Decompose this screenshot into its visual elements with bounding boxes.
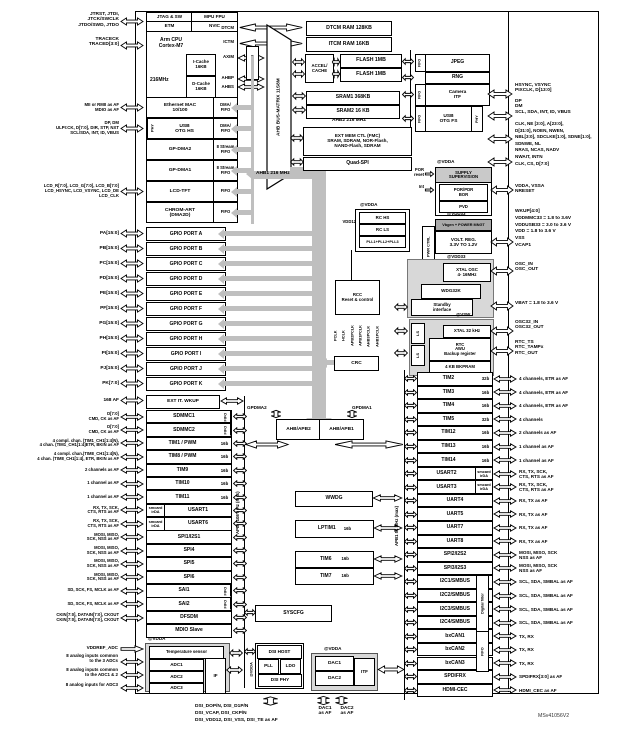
block-bits-tag: 16b bbox=[218, 478, 231, 490]
gpio-row: PB[15:0] GPIO PORT B bbox=[0, 241, 340, 256]
dac-itf-block: ITF bbox=[354, 658, 375, 686]
pin-arrow bbox=[493, 673, 517, 681]
dma-row: GP-DMA1 8 Stream FIFO bbox=[0, 160, 340, 181]
cpu-port-dtcm: DTCM bbox=[212, 26, 234, 31]
pin-arrow bbox=[120, 426, 144, 434]
adc-in3-pins: 8 analog inputs for ADC3 bbox=[0, 683, 118, 688]
block-bits-tag: 32b bbox=[479, 373, 492, 385]
usb-fs-arrow bbox=[402, 115, 414, 122]
apb2-block-name: TIM11 bbox=[147, 491, 218, 503]
camera-pins: HSYNC, VSYNC PIXCLK, D[13:0] bbox=[515, 83, 615, 94]
pin-arrow bbox=[493, 510, 517, 518]
gpio-port-pins: PK[7:0] bbox=[0, 381, 119, 386]
apb1-block-name: USART2 bbox=[418, 468, 475, 480]
apb1-row: TIM2 32b 4 channels, ETR as AF bbox=[404, 372, 627, 386]
rcc-block: RCC Reset & control bbox=[335, 280, 380, 315]
apb2-rows: D[7:0] CMD, CK as AF SDMMC1 FIFO D[7:0] … bbox=[0, 410, 300, 638]
dsi-phy-block: DSI PHY bbox=[258, 674, 302, 687]
dac-vdda-label: @VDDA bbox=[324, 646, 364, 651]
etm-block: ETM bbox=[146, 21, 193, 32]
pin-arrow bbox=[120, 229, 144, 238]
gray-bus-stub bbox=[224, 246, 312, 251]
apb1-bus-arrow bbox=[404, 375, 417, 382]
apb1-row: UART7 RX, TX as AF bbox=[404, 521, 627, 535]
apb1-bus-arrow bbox=[404, 538, 417, 545]
vdd12-label: VDD12 bbox=[338, 220, 356, 225]
standby-arrow bbox=[394, 303, 408, 311]
apb2-block-name: SPI4 bbox=[147, 545, 231, 557]
apb2-row-pins: MOSI, MISO, SCK, NSS as AF bbox=[0, 533, 119, 542]
apb1-row: I2C3/SMBUS SCL, SDA, SMBAL as AF bbox=[404, 602, 627, 616]
apb1-row-pins: MOSI, MISO, SCK NSS as AF bbox=[517, 550, 627, 560]
pin-arrow bbox=[120, 304, 144, 313]
apb1-bus-arrow bbox=[404, 389, 417, 396]
gray-bus-stub bbox=[224, 306, 312, 311]
apb1-row-pins: SCL, SDA, SMBAL as AF bbox=[517, 579, 627, 584]
dsi-pll-block: PLL bbox=[258, 659, 279, 674]
jtag-pins: JTRST, JTDI, JTCK/SWCLK JTDO/SWD, JTDO bbox=[0, 12, 119, 28]
apb1-bus-arrow bbox=[404, 457, 417, 464]
pin-arrow bbox=[120, 334, 144, 343]
apb2-block-name: SPI5 bbox=[147, 558, 231, 570]
backup-arrow-1 bbox=[394, 327, 408, 335]
dma-row: MII or RMII as AF MDIO as AF Ethernet MA… bbox=[0, 97, 340, 118]
apb1-bus-arrow bbox=[404, 470, 417, 477]
cpu-freq-label: 216MHz bbox=[150, 78, 182, 84]
digital-filter-strip: Digital filter bbox=[476, 575, 489, 632]
apb2-row-pins: RX, TX, SCK, CTS, RTS as AF bbox=[0, 506, 119, 515]
fmc-pins: CLK, NE [3:0], A[23:0], D[31:0], NOEN, N… bbox=[515, 121, 627, 161]
pin-arrow bbox=[120, 560, 144, 568]
lptim1-bits: 16b bbox=[344, 527, 351, 532]
block-bits-tag: FIFO bbox=[221, 598, 231, 610]
gpio-port-block: GPIO PORT E bbox=[146, 287, 226, 301]
apb2-bus-arrow bbox=[233, 627, 247, 634]
apb1-row-pins: RX, TX, SCK, CTS, RTS as AF bbox=[517, 469, 627, 479]
accel-arrow-2 bbox=[292, 70, 305, 78]
adc-in1-arrow bbox=[120, 658, 144, 666]
pin-arrow bbox=[120, 600, 144, 608]
dma-block-name: USB OTG HS bbox=[156, 119, 213, 138]
rc-hs-block: RC HS bbox=[359, 212, 406, 224]
osc-pin-arrow bbox=[490, 266, 514, 276]
block-bits-tag: 16b bbox=[479, 427, 492, 439]
exti-pin-arrow bbox=[120, 396, 144, 405]
pin-arrow bbox=[120, 506, 144, 514]
pin-arrow bbox=[120, 520, 144, 528]
pin-arrow bbox=[493, 375, 517, 383]
tim7-block: TIM7 16b bbox=[295, 568, 374, 585]
block-bits-tag: FIFO bbox=[221, 411, 231, 423]
tim6-label: TIM6 bbox=[320, 557, 331, 562]
apb2-bus-arrow bbox=[233, 507, 247, 514]
apb1-bus-arrow bbox=[404, 429, 417, 436]
apb2-bus-arrow bbox=[233, 614, 247, 621]
gpio-port-pins: PE[15:0] bbox=[0, 291, 119, 296]
pin-arrow bbox=[120, 319, 144, 328]
gpio-port-pins: PB[15:0] bbox=[0, 246, 119, 251]
apb1-bus-arrow bbox=[404, 484, 417, 491]
apb1-row: UART5 RX, TX as AF bbox=[404, 507, 627, 521]
rtc-pins: RTC_TS RTC_TAMPx RTC_OUT bbox=[515, 340, 585, 356]
cpu-port-axim: AXIM bbox=[214, 55, 234, 60]
block-bits-tag: 16b bbox=[218, 438, 231, 450]
apb2-bus-arrow bbox=[233, 534, 247, 541]
gray-bus-stub bbox=[224, 231, 312, 236]
power-mngt-strip: Vbgen + POWER MNGT bbox=[435, 219, 492, 231]
pin-arrow bbox=[120, 379, 144, 388]
gray-bus-stub bbox=[237, 126, 253, 131]
xtal-osc-block: XTAL OSC 4- 16MHz bbox=[443, 263, 491, 282]
exti-wkup-block: EXT IT. WKUP bbox=[146, 395, 220, 409]
dma-block-name: GP-DMA2 bbox=[147, 140, 213, 159]
apb1-row-pins: RX, TX, SCK, CTS, RTS as AF bbox=[517, 482, 627, 492]
pin-arrow bbox=[120, 439, 144, 447]
gray-bus-stub bbox=[224, 276, 312, 281]
cpu-port-ahbp: AHBP bbox=[214, 76, 234, 81]
exti-af-label: 168 AF bbox=[0, 398, 119, 403]
int-arrow bbox=[425, 187, 434, 193]
apb2-block-name: SPI6 bbox=[147, 572, 231, 584]
apb1-bus-arrow bbox=[404, 565, 417, 572]
vdd33-label-1: @VDD33 bbox=[447, 212, 487, 217]
apb1-row: UART8 RX, TX as AF bbox=[404, 535, 627, 549]
wwdg-block: WWDG bbox=[295, 491, 373, 507]
apb2-block-name: SPI1/I2S1 bbox=[147, 531, 231, 543]
gpio-port-pins: PC[15:0] bbox=[0, 261, 119, 266]
camera-itf-block: Camera ITF bbox=[425, 84, 490, 106]
apb2-row-pins: MOSI, MISO, SCK, NSS as AF bbox=[0, 559, 119, 568]
apb1-bus-arrow bbox=[404, 416, 417, 423]
apb2-row-pins: D[7:0] CMD, CK as AF bbox=[0, 412, 119, 421]
pin-arrow bbox=[493, 402, 517, 410]
apb1-block-name: TIM3 bbox=[418, 387, 479, 399]
apb1-row: TIM14 16b 1 channel as AF bbox=[404, 453, 627, 467]
apb1-row-pins: RX, TX as AF bbox=[517, 525, 627, 530]
lptim1-label: LPTIM1 bbox=[318, 526, 336, 531]
apb2-row: D[7:0] CMD, CK as AF SDMMC1 FIFO bbox=[0, 410, 300, 423]
apb2-row-pins: SD, SCK, FS, MCLK as AF bbox=[0, 602, 119, 607]
adc3-block: ADC3 bbox=[149, 683, 204, 694]
pin-arrow bbox=[120, 466, 144, 474]
apb2-block-name: SAI1 bbox=[147, 585, 221, 597]
apb2-block-name: TIM8 / PWM bbox=[147, 451, 218, 463]
gray-bus-stub bbox=[237, 147, 253, 152]
gpio-port-pins: PJ[15:0] bbox=[0, 366, 119, 371]
pin-arrow bbox=[493, 497, 517, 505]
smcard-irda-strip: smcard irDA bbox=[475, 481, 492, 493]
apb2-bus-arrow bbox=[233, 467, 247, 474]
adc-bus-arrow bbox=[226, 666, 243, 674]
pin-arrow bbox=[493, 551, 517, 559]
dac-itf-arrow bbox=[377, 665, 405, 674]
apb2-row: 1 channel as AF TIM10 16b bbox=[0, 477, 300, 490]
gpio-row: PE[15:0] GPIO PORT E bbox=[0, 286, 340, 301]
pin-arrow bbox=[493, 415, 517, 423]
apb2-block-name: SDMMC1 bbox=[147, 411, 221, 423]
dac1-block: DAC1 bbox=[315, 656, 354, 671]
pin-arrow bbox=[493, 659, 517, 667]
qspi-pins: CLK, CS, D[7:0] bbox=[515, 161, 595, 166]
gpio-port-block: GPIO PORT I bbox=[146, 347, 226, 361]
dma-block-name: LCD-TFT bbox=[147, 182, 213, 201]
pll-block: PLL1+PLL2+PLL3 bbox=[359, 236, 406, 248]
block-bits-tag: 16b bbox=[218, 465, 231, 477]
apb1-bus-arrow bbox=[404, 578, 417, 585]
adc1-block: ADC1 bbox=[149, 659, 204, 671]
apb2-block-name: SAI2 bbox=[147, 598, 221, 610]
apb1-block-name: SPI3/I2S3 bbox=[418, 563, 492, 575]
rcc-feed-line bbox=[351, 250, 352, 280]
vbat-pin-arrow bbox=[490, 301, 514, 311]
apb1-block-name: UART5 bbox=[418, 508, 492, 520]
block-bits-tag: 16b bbox=[479, 441, 492, 453]
bridge-right-arrow bbox=[332, 440, 406, 449]
apb2-row-pins: MOSI, MISO, SCK, NSS as AF bbox=[0, 573, 119, 582]
rtc-pin-arrow bbox=[490, 346, 514, 356]
apb1-row-pins: SPDIFRX[3:0] as AF bbox=[517, 674, 627, 679]
adc-in2-pins: 8 analog inputs common to the ADC1 & 2 bbox=[0, 668, 118, 678]
flash-arrow-2 bbox=[332, 70, 340, 78]
itcm-ram-block: ITCM RAM 16KB bbox=[306, 37, 392, 52]
gpio-port-pins: PD[15:0] bbox=[0, 276, 119, 281]
rng-block: RNG bbox=[425, 72, 490, 84]
can-fifo-strip: FIFO bbox=[476, 631, 489, 672]
dma-block-name: CHROM-ART (DMA2D) bbox=[147, 203, 213, 222]
gpio-row: PH[15:0] GPIO PORT H bbox=[0, 331, 340, 346]
dma-row: CHROM-ART (DMA2D) FIFO bbox=[0, 202, 340, 223]
vdd33-label-2: @VDD33 bbox=[447, 255, 487, 260]
vdda-vssa-pins: VDDA, VSSA NRESET bbox=[515, 184, 595, 195]
gpio-port-pins: PI[15:0] bbox=[0, 351, 119, 356]
apb1-bus-arrow bbox=[404, 402, 417, 409]
apb1-rows: TIM2 32b 4 channels, ETR as AF TIM3 16b … bbox=[404, 372, 627, 697]
apb1-row: SPI2/I2S2 MOSI, MISO, SCK NSS as AF bbox=[404, 548, 627, 562]
apb1-bus-arrow bbox=[404, 687, 417, 694]
ahb2-bus-label: AHB2 216 MHZ bbox=[332, 118, 400, 123]
clock-output-label: AHB1PCLK bbox=[373, 315, 381, 357]
apb2-row-pins: SD, SCK, FS, MCLK as AF bbox=[0, 588, 119, 593]
gray-bus-stub bbox=[237, 105, 253, 110]
pin-arrow bbox=[493, 388, 517, 396]
apb1-row-pins: RX, TX as AF bbox=[517, 539, 627, 544]
clock-output-label: HCLK bbox=[339, 315, 347, 357]
apb1-bus-arrow bbox=[404, 606, 417, 613]
gpio-port-pins: PA[15:0] bbox=[0, 231, 119, 236]
apb2-row: MOSI, MISO, SCK, NSS as AF SPI1/I2S1 bbox=[0, 531, 300, 544]
block-bits-tag: 16b bbox=[218, 491, 231, 503]
lptim1-block: LPTIM1 16b bbox=[295, 520, 374, 538]
gpio-port-block: GPIO PORT F bbox=[146, 302, 226, 316]
pin-arrow bbox=[493, 605, 517, 613]
apb1-row-pins: SCL, SDA, SMBAL as AF bbox=[517, 620, 627, 625]
pin-arrow bbox=[120, 187, 144, 196]
gpio-port-block: GPIO PORT G bbox=[146, 317, 226, 331]
apb2-bus-arrow bbox=[233, 560, 247, 567]
apb2-bus-arrow bbox=[233, 520, 247, 527]
por-pdr-bor-block: POR/PDR BOR bbox=[439, 184, 488, 201]
apb1-bus-arrow bbox=[404, 511, 417, 518]
apb1-row-pins: 4 channels, ETR as AF bbox=[517, 403, 627, 408]
supply-supervision-header: SUPPLY SUPERVISION bbox=[435, 167, 492, 183]
apb1-row-pins: MOSI, MISO, SCK NSS as AF bbox=[517, 563, 627, 573]
rng-arrow bbox=[402, 74, 414, 81]
usb-fs-pin-arrow bbox=[487, 111, 513, 121]
pin-arrow bbox=[120, 614, 144, 622]
pin-arrow bbox=[120, 453, 144, 461]
cpu-core-label: Arm CPU Cortex-M7 bbox=[151, 38, 191, 49]
apb1-block-name: SPI2/I2S2 bbox=[418, 549, 492, 561]
apb1-block-name: HDMI-CEC bbox=[418, 685, 492, 697]
gpdma1-arrow bbox=[346, 410, 358, 418]
block-bits-tag: FIFO bbox=[221, 585, 231, 597]
apb2-block-name: TIM9 bbox=[147, 465, 218, 477]
smcard-irda-strip: smcard irDA bbox=[147, 505, 165, 517]
dsi-host-block: DSI HOST bbox=[257, 645, 302, 659]
accel-cache-block: ACCEL/ CACHE bbox=[305, 54, 334, 83]
pin-arrow bbox=[120, 480, 144, 488]
apb2-row: 1 channel as AF TIM11 16b bbox=[0, 490, 300, 503]
apb1-block-name: TIM4 bbox=[418, 400, 479, 412]
apb1-block-name: UART7 bbox=[418, 522, 492, 534]
apb1-row-pins: 2 channels as AF bbox=[517, 430, 627, 435]
dac2-block: DAC2 bbox=[315, 671, 354, 686]
jpeg-arrow bbox=[402, 58, 414, 65]
gray-bus-stub bbox=[237, 189, 253, 194]
pin-arrow bbox=[120, 124, 144, 133]
apb1-bus-arrow bbox=[404, 673, 417, 680]
apb1-row-pins: SCL, SDA, SMBAL as AF bbox=[517, 607, 627, 612]
fmc-pin-arrow bbox=[487, 134, 513, 144]
apb2-row: MOSI, MISO, SCK, NSS as AF SPI5 bbox=[0, 557, 300, 570]
apb1-row: TIM12 16b 2 channels as AF bbox=[404, 426, 627, 440]
trace-arrow bbox=[120, 41, 144, 50]
apb2-bus-arrow bbox=[233, 427, 247, 434]
apb1-row-pins: 4 channels, ETR as AF bbox=[517, 390, 627, 395]
gpio-row: PC[15:0] GPIO PORT C bbox=[0, 256, 340, 271]
gpio-port-block: GPIO PORT K bbox=[146, 377, 226, 391]
vddref-adc-pin: VDDREF_ADC bbox=[0, 645, 118, 650]
jpeg-block: JPEG bbox=[425, 54, 490, 72]
apb1-row: USART3 smcard irDA RX, TX, SCK, CTS, RTS… bbox=[404, 480, 627, 494]
apb1-bus-arrow bbox=[404, 497, 417, 504]
pin-arrow bbox=[120, 533, 144, 541]
pin-arrow bbox=[120, 413, 144, 421]
figure-id-watermark: MSv41056V2 bbox=[538, 714, 623, 720]
apb1-row-pins: RX, TX as AF bbox=[517, 498, 627, 503]
apb1-block-name: TIM2 bbox=[418, 373, 479, 385]
ls-strip-2: LS bbox=[411, 345, 425, 366]
apb2-row: D[7:0] CMD, CK as AF SDMMC2 FIFO bbox=[0, 423, 300, 436]
apb2-block-name: TIM1 / PWM bbox=[147, 438, 218, 450]
apb1-bus-arrow bbox=[404, 592, 417, 599]
block-bits-tag: 16b bbox=[479, 454, 492, 466]
dac1-pin-arrow bbox=[316, 696, 331, 705]
apb1-block-name: UART4 bbox=[418, 495, 492, 507]
pin-arrow bbox=[120, 259, 144, 268]
apb1-block-name: TIM13 bbox=[418, 441, 479, 453]
apb1-bus-arrow bbox=[404, 660, 417, 667]
icache-block: I-Cache 16KB bbox=[186, 54, 216, 76]
pin-arrow bbox=[120, 289, 144, 298]
jtag-arrow bbox=[120, 17, 144, 26]
dma-row: DP, DM ULPI:CK, D[7:0], DIR, STP, NXT SC… bbox=[0, 118, 340, 139]
gpio-port-block: GPIO PORT D bbox=[146, 272, 226, 286]
apb2-block-name: SDMMC2 bbox=[147, 424, 221, 436]
pin-arrow bbox=[493, 646, 517, 654]
phy-strip: PHY bbox=[147, 119, 156, 138]
usb-fs-pins: DP DM SCL, SDA, INT, ID, VBUS bbox=[515, 99, 625, 115]
clock-output-label: AHB3PCLK bbox=[364, 315, 372, 357]
osc32-pin-arrow bbox=[490, 326, 514, 336]
vbat-pin: VBAT = 1.8 to 3.6 V bbox=[515, 301, 615, 306]
apb1-row: TIM5 32b 4 channels bbox=[404, 413, 627, 427]
dma-row-pins: DP, DM ULPI:CK, D[7:0], DIR, STP, NXT SC… bbox=[0, 121, 119, 135]
apb1-block-name: SPDIFRX bbox=[418, 671, 492, 683]
dcache-block: D-Cache 16KB bbox=[186, 76, 216, 98]
apb2-bus-arrow bbox=[233, 494, 247, 501]
gpio-port-block: GPIO PORT J bbox=[146, 362, 226, 376]
dac2-pins: DAC2 as AF bbox=[336, 706, 358, 717]
apb1-row: I2C4/SMBUS SCL, SDA, SMBAL as AF bbox=[404, 616, 627, 630]
apb2-row: RX, TX, SCK, CTS, RTS as AF smcard irDA … bbox=[0, 517, 300, 530]
adc-in3-arrow bbox=[120, 684, 144, 692]
apb2-row: MOSI, MISO, SCK, NSS as AF SPI4 bbox=[0, 544, 300, 557]
gpio-row: PD[15:0] GPIO PORT D bbox=[0, 271, 340, 286]
apb1-row: bxCAN2 TX, RX bbox=[404, 643, 627, 657]
dma-row-pins: LCD_R[7:0], LCD_G[7:0], LCD_B[7:0] LCD_H… bbox=[0, 184, 119, 198]
pin-arrow bbox=[493, 592, 517, 600]
dma-block-name: Ethernet MAC 10/100 bbox=[147, 98, 213, 117]
apb1-bus-arrow bbox=[404, 646, 417, 653]
gpio-port-pins: PG[15:0] bbox=[0, 321, 119, 326]
trace-pins: TRACECK TRACED[3:0] bbox=[0, 37, 119, 48]
gpio-row: PG[15:0] GPIO PORT G bbox=[0, 316, 340, 331]
pin-arrow bbox=[493, 619, 517, 627]
gray-bus-stub bbox=[224, 336, 312, 341]
pin-arrow bbox=[493, 456, 517, 464]
pin-arrow bbox=[120, 349, 144, 358]
dac1-pins: DAC1 as AF bbox=[314, 706, 336, 717]
cpu-port-ictm: ICTM bbox=[212, 40, 234, 45]
apb1-row: bxCAN3 TX, RX bbox=[404, 656, 627, 670]
pin-arrow bbox=[493, 443, 517, 451]
qspi-pin-arrow bbox=[487, 157, 513, 167]
pin-arrow bbox=[120, 547, 144, 555]
usb-fs-phy-strip: PHY bbox=[471, 106, 483, 132]
accel-arrow-1 bbox=[292, 58, 305, 66]
apb2-bus-arrow bbox=[233, 453, 247, 460]
apb2-row-pins: MOSI, MISO, SCK, NSS as AF bbox=[0, 546, 119, 555]
pin-arrow bbox=[493, 686, 517, 694]
apb2-bus-arrow bbox=[233, 413, 247, 420]
vsw-label: @VSW bbox=[456, 313, 486, 318]
apb1-block-name: TIM14 bbox=[418, 454, 479, 466]
block-bits-tag: 16b bbox=[479, 387, 492, 399]
apb1-row-pins: HDMI_CEC as AF bbox=[517, 688, 627, 693]
xtal32-block: XTAL 32 kHz bbox=[443, 325, 491, 338]
apb2-row-pins: 1 channel as AF bbox=[0, 481, 119, 486]
gpio-rows: PA[15:0] GPIO PORT A PB[15:0] GPIO PORT … bbox=[0, 226, 340, 391]
osc32-pins: OSC32_IN OSC32_OUT bbox=[515, 320, 585, 331]
vddref-arrow bbox=[120, 645, 144, 653]
apb2-block-name: MDIO Slave bbox=[147, 625, 231, 637]
gray-bus-stub bbox=[224, 291, 312, 296]
pin-arrow bbox=[120, 244, 144, 253]
apb1-row-pins: TX, RX bbox=[517, 661, 627, 666]
pin-arrow bbox=[493, 470, 517, 478]
gpio-port-pins: PF[15:0] bbox=[0, 306, 119, 311]
